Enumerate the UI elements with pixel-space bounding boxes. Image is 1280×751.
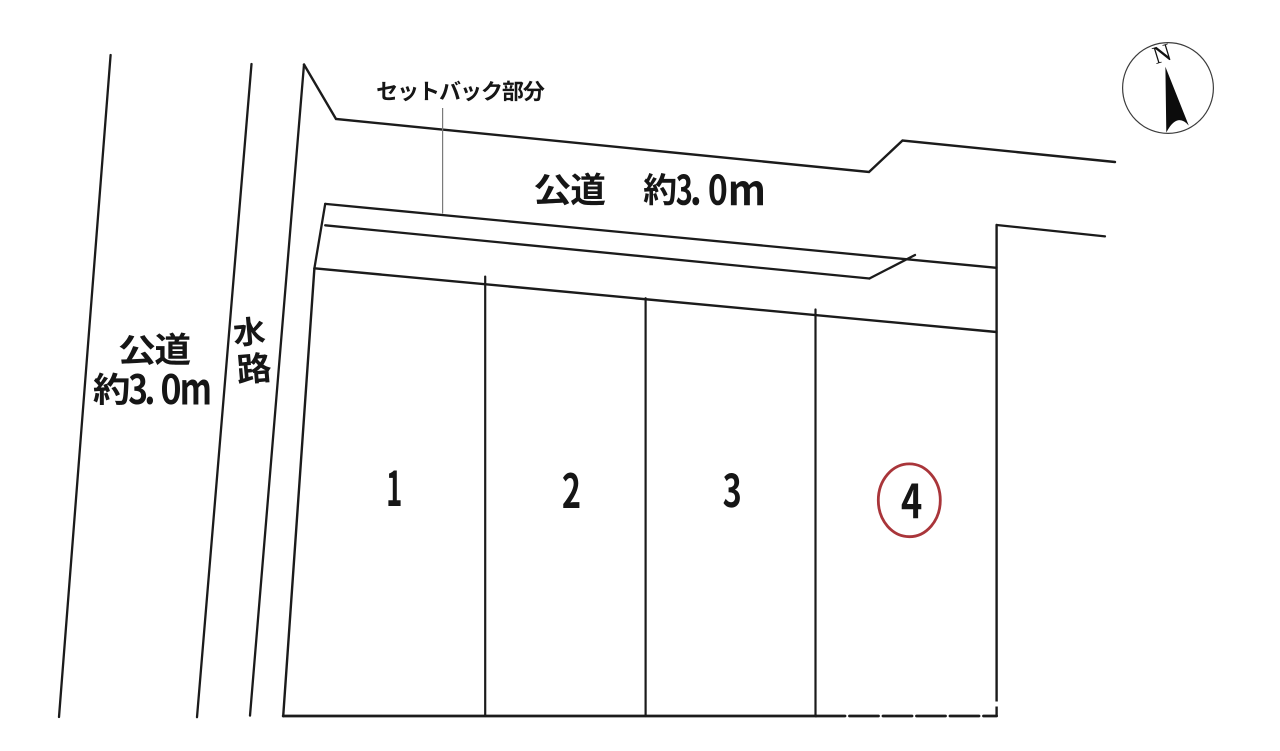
svg-text:N: N	[1150, 39, 1175, 70]
